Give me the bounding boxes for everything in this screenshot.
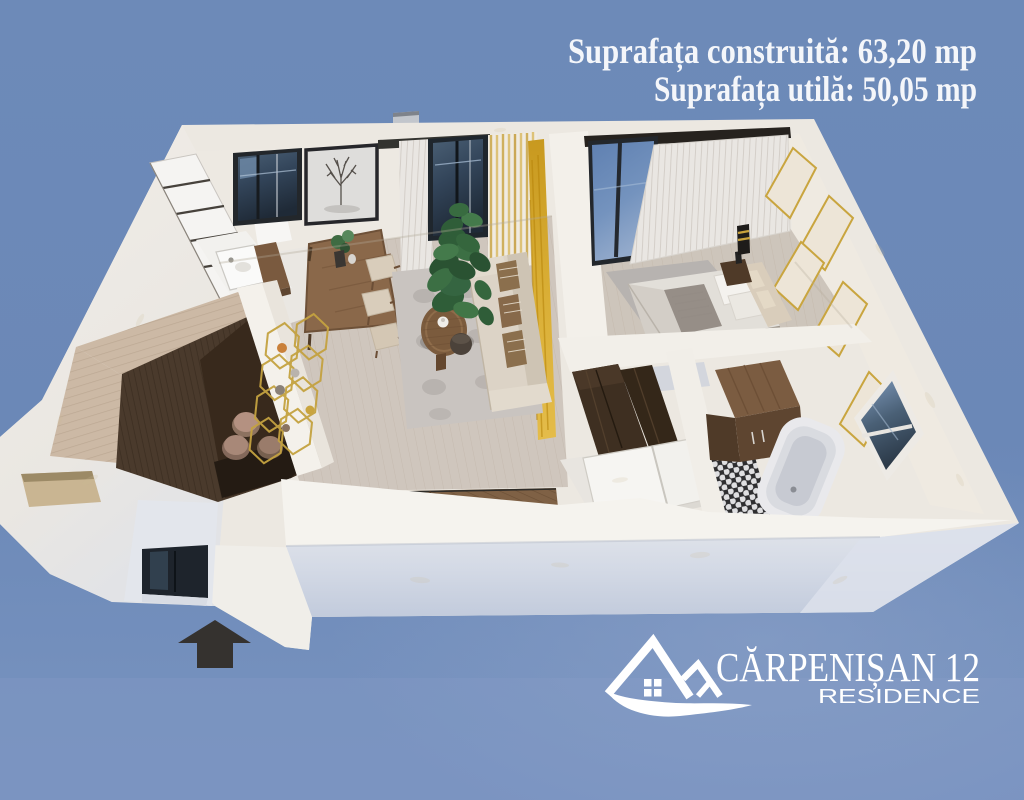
svg-text:Suprafața utilă: 50,05 mp: Suprafața utilă: 50,05 mp bbox=[654, 69, 977, 110]
svg-text:Suprafața construită: 63,20 mp: Suprafața construită: 63,20 mp bbox=[568, 31, 977, 72]
svg-text:RESIDENCE: RESIDENCE bbox=[818, 686, 980, 708]
svg-text:CĂRPENIȘAN 12: CĂRPENIȘAN 12 bbox=[716, 644, 980, 690]
